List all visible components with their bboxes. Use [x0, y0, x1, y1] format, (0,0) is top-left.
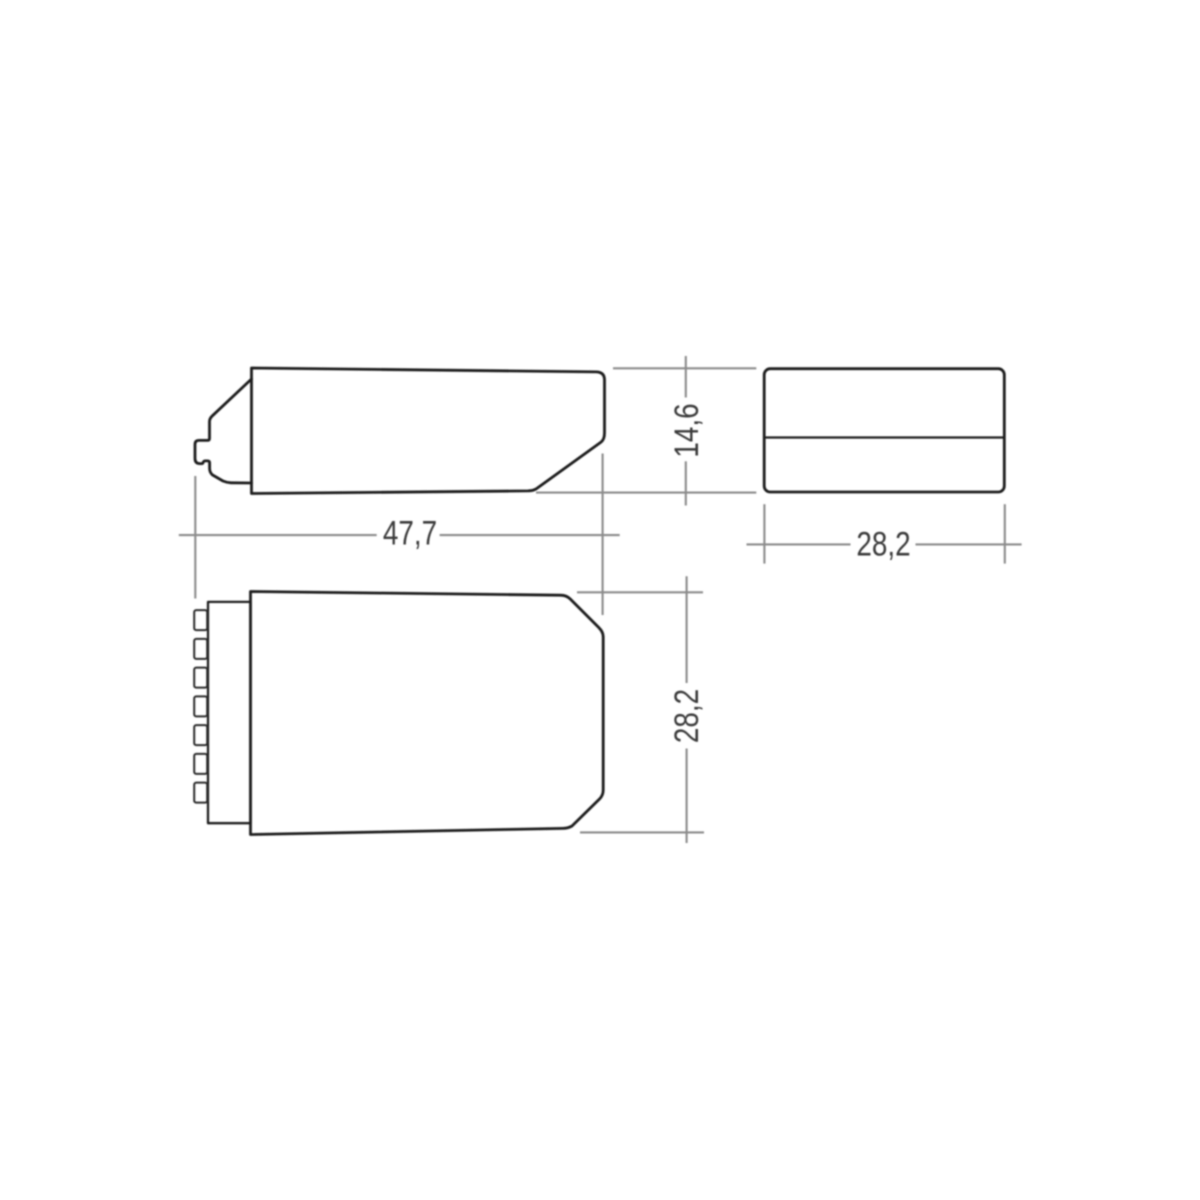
svg-text:47,7: 47,7 — [383, 514, 437, 552]
svg-text:28,2: 28,2 — [667, 689, 705, 743]
svg-text:28,2: 28,2 — [856, 525, 910, 563]
svg-text:14,6: 14,6 — [667, 403, 705, 457]
